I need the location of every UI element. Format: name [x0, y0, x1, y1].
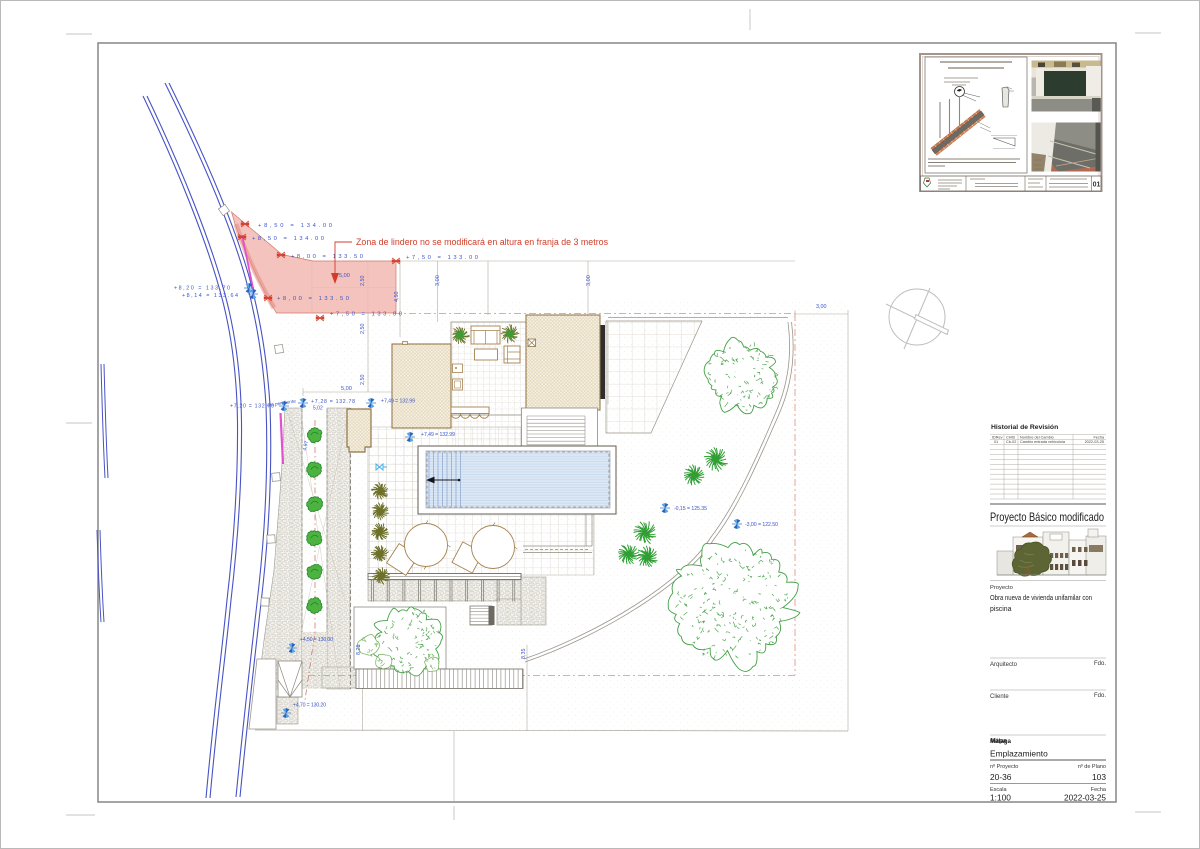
svg-text:3,00: 3,00 [816, 304, 827, 310]
svg-text:01: 01 [1093, 182, 1101, 189]
svg-text:Nombre del Cambio: Nombre del Cambio [1020, 435, 1054, 439]
svg-text:2,50: 2,50 [360, 276, 366, 287]
svg-text:CHID: CHID [1006, 435, 1016, 439]
svg-text:+7,49 = 132.99: +7,49 = 132.99 [381, 399, 415, 405]
svg-text:+8,20 = 133.70: +8,20 = 133.70 [174, 286, 230, 292]
svg-text:5,00: 5,00 [341, 386, 352, 392]
svg-text:-3,00 = 122.50: -3,00 = 122.50 [745, 522, 778, 528]
svg-text:Proyecto: Proyecto [990, 585, 1013, 591]
svg-text:5,02: 5,02 [313, 406, 323, 412]
svg-text:Emplazamiento: Emplazamiento [990, 749, 1048, 759]
svg-text:2,50: 2,50 [360, 324, 366, 335]
svg-text:+7,49 = 132.99: +7,49 = 132.99 [421, 432, 455, 438]
svg-text:Mapa: Mapa [991, 738, 1007, 745]
svg-text:1:100: 1:100 [990, 793, 1011, 803]
svg-text:8,35: 8,35 [521, 649, 527, 660]
svg-text:Fdo.: Fdo. [1094, 693, 1106, 699]
svg-text:+4,70 = 130.20: +4,70 = 130.20 [293, 703, 326, 709]
svg-text:103: 103 [1092, 772, 1106, 782]
svg-text:2022-03-25: 2022-03-25 [1085, 440, 1104, 444]
svg-text:Cb-02: Cb-02 [1006, 440, 1016, 444]
svg-text:+8,14 = 133.64: +8,14 = 133.64 [182, 293, 238, 299]
svg-text:Proyecto Básico modificado: Proyecto Básico modificado [990, 510, 1104, 524]
svg-text:-0,15 = 125.35: -0,15 = 125.35 [674, 506, 707, 512]
svg-text:piscina: piscina [990, 606, 1012, 613]
svg-text:Historial de Revisión: Historial de Revisión [991, 424, 1058, 431]
svg-text:4,50: 4,50 [394, 292, 400, 303]
svg-text:Obra nueva de vivienda unifami: Obra nueva de vivienda unifamilar con [990, 595, 1092, 602]
svg-text:Cambio entrada vehiculola: Cambio entrada vehiculola [1020, 440, 1066, 444]
svg-text:5,00: 5,00 [339, 273, 350, 279]
svg-text:Cliente: Cliente [990, 694, 1009, 700]
svg-text:+7,28 = 132.78: +7,28 = 132.78 [311, 399, 355, 405]
svg-text:3,00: 3,00 [586, 275, 592, 286]
svg-text:nº Proyecto: nº Proyecto [990, 763, 1018, 770]
svg-text:Arquitecto: Arquitecto [990, 662, 1018, 668]
svg-text:+4,50 = 130.00: +4,50 = 130.00 [300, 637, 333, 643]
svg-text:3,00: 3,00 [435, 275, 441, 286]
svg-text:20-36: 20-36 [990, 772, 1012, 782]
svg-text:Fdo.: Fdo. [1094, 661, 1106, 667]
svg-text:8,28: 8,28 [356, 645, 362, 656]
svg-text:2022-03-25: 2022-03-25 [1064, 793, 1106, 803]
svg-text:Zona de lindero no se modifica: Zona de lindero no se modificará en altu… [356, 237, 608, 247]
svg-text:01: 01 [994, 440, 998, 444]
svg-text:Fecha: Fecha [1093, 435, 1104, 439]
svg-text:nº de Plano: nº de Plano [1078, 763, 1106, 770]
svg-text:2,50: 2,50 [360, 375, 366, 386]
svg-text:IDRev: IDRev [992, 435, 1003, 439]
